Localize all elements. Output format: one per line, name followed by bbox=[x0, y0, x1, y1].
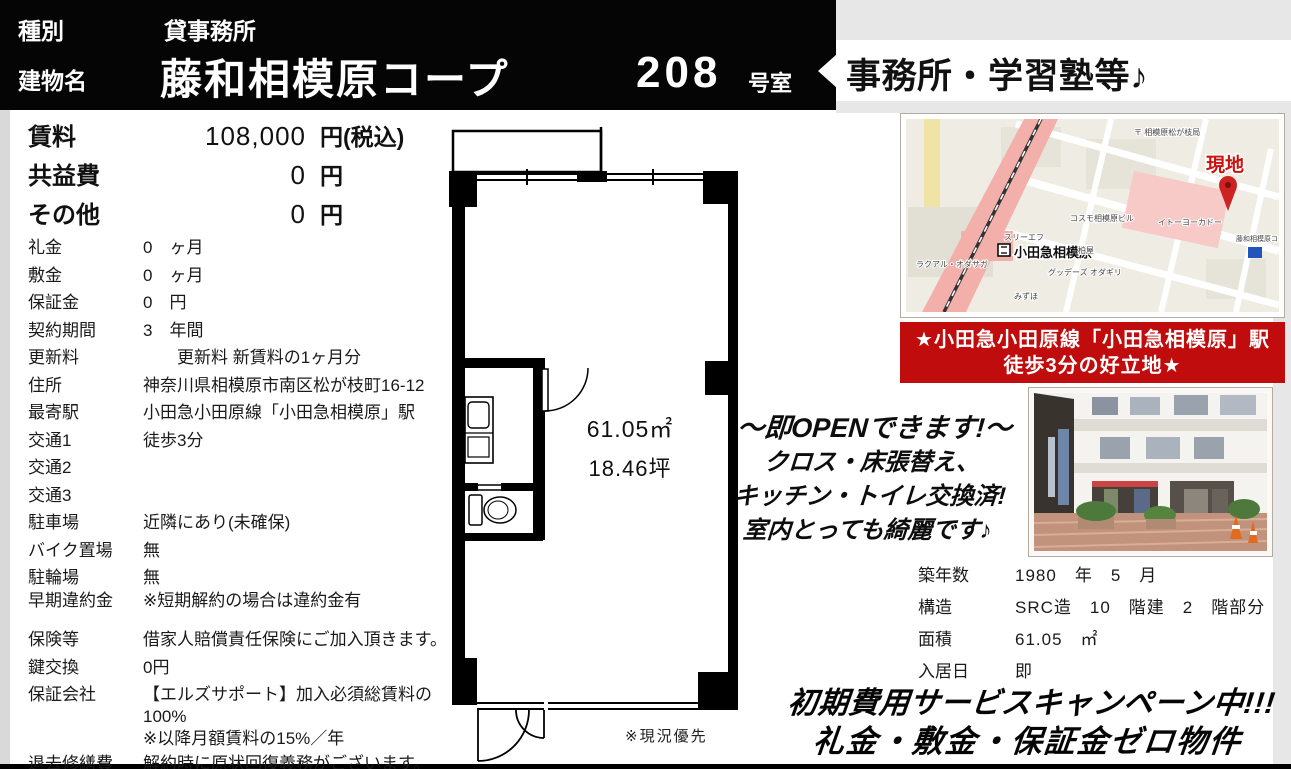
map-site-label: 現地 bbox=[1206, 153, 1244, 176]
map-label-kashiwaya: 柏屋 bbox=[1078, 245, 1094, 255]
row-value: 0 bbox=[158, 160, 306, 191]
area-tsubo: 18.46坪 bbox=[560, 451, 700, 483]
area-map: 小田急相模原 現地 〒 相模原松が枝局 コスモ相模原ビル スリーエフ 柏屋 グッ… bbox=[906, 119, 1279, 312]
detail-row: 交通2 bbox=[10, 454, 447, 482]
row-unit: 円(税込) bbox=[320, 118, 404, 152]
row-value: 0 bbox=[158, 199, 306, 230]
left-margin bbox=[0, 110, 10, 766]
promo-line4: 室内とっても綺麗です♪ bbox=[713, 514, 1021, 548]
detail-row: 保証会社【エルズサポート】加入必須総賃料の100%※以降月額賃料の15%／年 bbox=[10, 681, 447, 750]
detail-row: バイク置場無 bbox=[10, 537, 447, 565]
building-name: 藤和相模原コープ bbox=[160, 46, 509, 107]
detail-row: 住所神奈川県相模原市南区松が枝町16-12 bbox=[10, 372, 447, 400]
usage-tag: 事務所・学習塾等♪ bbox=[846, 48, 1148, 99]
floorplan-note: ※現況優先 bbox=[625, 725, 708, 746]
detail-row-common-fee: 共益費 0 円 bbox=[10, 156, 447, 195]
detail-row: 最寄駅小田急小田原線「小田急相模原」駅 bbox=[10, 399, 447, 427]
row-unit: 円 bbox=[320, 157, 343, 191]
building-info-row: 入居日即 bbox=[918, 656, 1278, 688]
detail-row: 保険等借家人賠償責任保険にご加入頂きます。 bbox=[10, 626, 447, 654]
building-info-row: 面積61.05 ㎡ bbox=[918, 624, 1278, 656]
campaign-text: 初期費用サービスキャンペーン中!!! 礼金・敷金・保証金ゼロ物件 bbox=[764, 685, 1291, 761]
detail-row: 敷金0 ヶ月 bbox=[10, 262, 447, 290]
map-label-property: 藤和相模原コープ bbox=[1236, 234, 1279, 243]
promo-line3: キッチン・トイレ交換済! bbox=[716, 480, 1024, 514]
detail-row: 契約期間3 年間 bbox=[10, 317, 447, 345]
detail-row: 交通3 bbox=[10, 482, 447, 510]
map-label-three-f: スリーエフ bbox=[1004, 233, 1044, 242]
detail-row-rent: 賃料 108,000 円(税込) bbox=[10, 117, 447, 156]
building-info-row: 築年数1980 年 5 月 bbox=[918, 560, 1278, 592]
campaign-line1: 初期費用サービスキャンペーン中!!! bbox=[768, 685, 1291, 723]
building-photo-image bbox=[1034, 393, 1267, 551]
map-label-lacual: ラクアル・オダサガ bbox=[916, 259, 988, 269]
detail-row: 退去修繕費解約時に原状回復義務がございます。 bbox=[10, 750, 447, 769]
header: 種別 貸事務所 建物名 藤和相模原コープ 208 号室 bbox=[0, 0, 836, 110]
property-type-value: 貸事務所 bbox=[164, 12, 256, 46]
promo-text: ～即OPENできます!～ クロス・床張替え、 キッチン・トイレ交換済! 室内とっ… bbox=[713, 410, 1029, 548]
map-label-itoyokado: イトーヨーカドー bbox=[1158, 218, 1222, 227]
map-label-post-office: 〒 相模原松が枝局 bbox=[1134, 127, 1200, 137]
campaign-line2: 礼金・敷金・保証金ゼロ物件 bbox=[764, 723, 1291, 761]
detail-row: 保証金0 円 bbox=[10, 289, 447, 317]
promo-line1: ～即OPENできます!～ bbox=[720, 410, 1029, 446]
room-number: 208 bbox=[636, 48, 721, 98]
detail-row: 更新料 更新料 新賃料の1ヶ月分 bbox=[10, 344, 447, 372]
detail-row: 駐車場近隣にあり(未確保) bbox=[10, 509, 447, 537]
map-label-gooddays: グッデーズ オダギリ bbox=[1048, 267, 1122, 277]
usage-tag-band: 事務所・学習塾等♪ bbox=[836, 40, 1291, 101]
detail-row: 鍵交換0円 bbox=[10, 654, 447, 682]
station-banner-line2: 徒歩3分の好立地★ bbox=[900, 353, 1285, 379]
row-value: 108,000 bbox=[158, 121, 306, 152]
floorplan: 61.05㎡ 18.46坪 ※現況優先 bbox=[445, 113, 745, 765]
row-label: 共益費 bbox=[10, 156, 158, 191]
detail-row-other: その他 0 円 bbox=[10, 195, 447, 234]
building-info-row: 構造SRC造 10 階建 2 階部分 bbox=[918, 592, 1278, 624]
building-name-label: 建物名 bbox=[18, 62, 87, 96]
left-arrow-icon bbox=[818, 54, 837, 88]
building-info: 築年数1980 年 5 月 構造SRC造 10 階建 2 階部分 面積61.05… bbox=[918, 560, 1278, 688]
room-number-suffix: 号室 bbox=[748, 66, 792, 98]
promo-line2: クロス・床張替え、 bbox=[718, 446, 1026, 480]
building-photo bbox=[1028, 387, 1273, 557]
row-unit: 円 bbox=[320, 196, 343, 230]
floorplan-area: 61.05㎡ 18.46坪 bbox=[560, 410, 700, 483]
map-label-mizuho: みずほ bbox=[1014, 291, 1038, 301]
row-label: その他 bbox=[10, 195, 158, 230]
row-label: 賃料 bbox=[10, 117, 158, 152]
station-banner: ★小田急小田原線「小田急相模原」駅 徒歩3分の好立地★ bbox=[900, 322, 1285, 383]
area-m2: 61.05㎡ bbox=[587, 416, 674, 442]
property-flyer: 種別 貸事務所 建物名 藤和相模原コープ 208 号室 事務所・学習塾等♪ 賃料… bbox=[0, 0, 1291, 769]
details-panel: 賃料 108,000 円(税込) 共益費 0 円 その他 0 円 礼金0 ヶ月 … bbox=[10, 112, 447, 769]
station-banner-line1: ★小田急小田原線「小田急相模原」駅 bbox=[900, 327, 1285, 353]
property-type-label: 種別 bbox=[18, 12, 64, 46]
band-lower-margin bbox=[836, 101, 1291, 113]
map-panel: 小田急相模原 現地 〒 相模原松が枝局 コスモ相模原ビル スリーエフ 柏屋 グッ… bbox=[900, 113, 1285, 318]
map-label-cosmo: コスモ相模原ビル bbox=[1070, 213, 1134, 223]
detail-row: 礼金0 ヶ月 bbox=[10, 234, 447, 262]
top-right-margin bbox=[836, 0, 1291, 40]
detail-row: 早期違約金※短期解約の場合は違約金有 bbox=[10, 587, 447, 615]
detail-row: 交通1徒歩3分 bbox=[10, 427, 447, 455]
